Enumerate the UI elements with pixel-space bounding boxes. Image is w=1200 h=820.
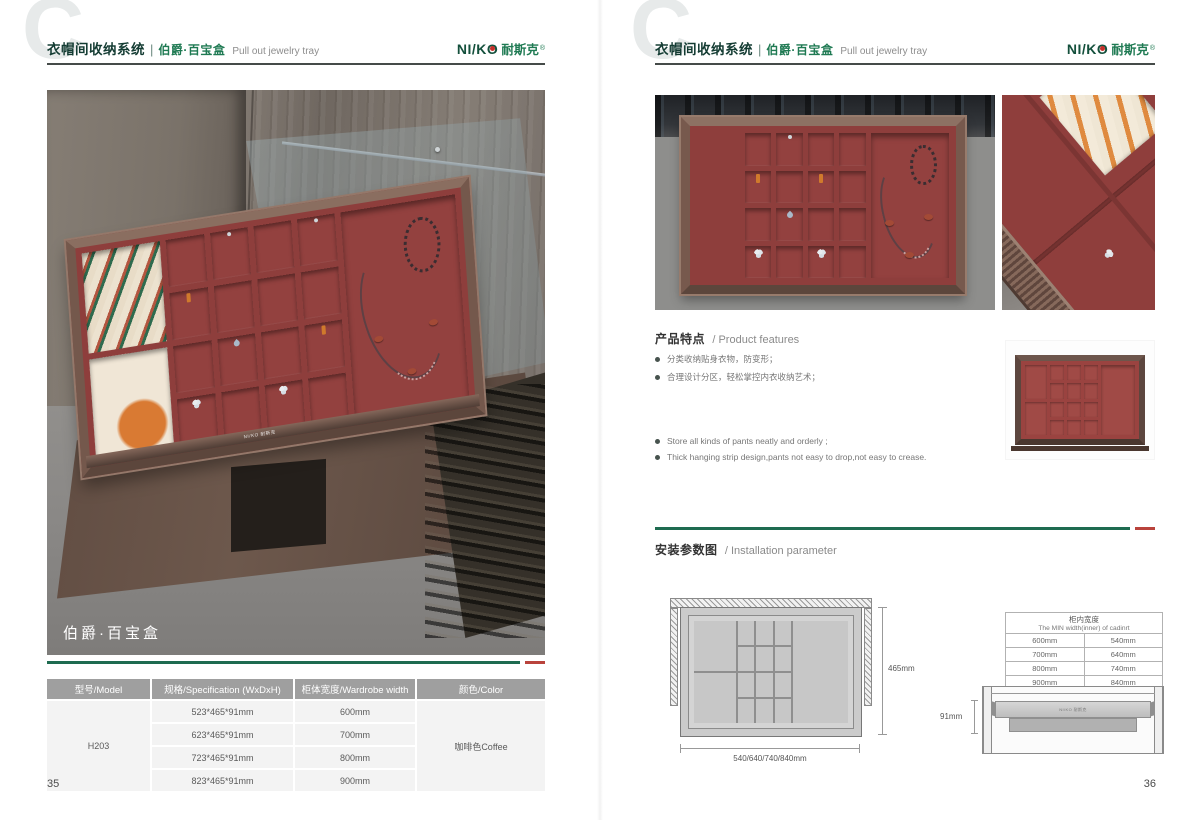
- tray-open-cell: [1101, 365, 1135, 435]
- header-divider: |: [150, 42, 153, 57]
- diagram-cell: [738, 647, 755, 671]
- spec-value: 523*465*91mm: [152, 701, 293, 722]
- diagram-cell: [738, 673, 755, 697]
- rotated-tray-corner: [1002, 95, 1155, 310]
- tray-grid-cells: [745, 133, 866, 278]
- tray-cell: [166, 234, 207, 287]
- hatched-cabinet-side-left: [670, 608, 678, 706]
- diagram-cell: [775, 621, 792, 645]
- heart-earrings-icon: [232, 339, 240, 347]
- tray-compartments: [1025, 365, 1135, 435]
- heart-earrings-icon: [785, 211, 793, 219]
- spec-table: 型号/Model H203 规格/Specification (WxDxH) 5…: [47, 679, 545, 791]
- header-divider: |: [758, 42, 761, 57]
- accent-rule: [655, 527, 1155, 530]
- width-value: 900mm: [295, 770, 415, 791]
- tray-cell: [213, 280, 254, 333]
- header-rule: [655, 63, 1155, 65]
- width-value: 800mm: [295, 747, 415, 768]
- feature-text: Thick hanging strip design,pants not eas…: [667, 452, 926, 462]
- tray-cell: [1067, 383, 1081, 398]
- tray-scarf-column: [1025, 365, 1047, 435]
- color-value: 咖啡色Coffee: [417, 701, 545, 791]
- feature-item: 分类收纳贴身衣物，防变形；: [655, 353, 820, 365]
- cabinet-side-panel: [983, 687, 992, 753]
- tray-cell: [260, 326, 301, 379]
- cabinet-outline: NI/KO 耐斯克: [982, 686, 1164, 754]
- tray-cell: [808, 246, 834, 279]
- spec-col-specification: 规格/Specification (WxDxH) 523*465*91mm 62…: [152, 679, 293, 791]
- flower-brooch-icon: [279, 385, 289, 395]
- tray-cell: [1084, 383, 1098, 398]
- tray-profile-upper: NI/KO 耐斯克: [995, 701, 1151, 718]
- depth-dimension-label: 465mm: [888, 664, 915, 673]
- width-dimension-label: 540/640/740/840mm: [680, 754, 860, 763]
- tray-cell: [839, 171, 866, 204]
- flower-petals: [1102, 247, 1115, 260]
- tray-cell: [745, 208, 771, 241]
- jewelry-tray: [681, 117, 965, 294]
- col-header-width: 柜体宽度/Wardrobe width: [295, 679, 415, 699]
- min-width-table-header: 柜内宽度 The MIN width(inner) of cadinrt: [1006, 613, 1163, 634]
- table-row: 700mm 640mm: [1006, 648, 1163, 662]
- flower-brooch-icon: [754, 249, 763, 258]
- table-row: 800mm 740mm: [1006, 662, 1163, 676]
- header-subtitle-en: Pull out jewelry tray: [232, 46, 319, 57]
- tray-cell: [1025, 402, 1047, 436]
- red-bead-icon: [885, 220, 894, 226]
- tray-cell: [776, 171, 802, 204]
- table-row: 600mm 540mm: [1006, 634, 1163, 648]
- tray-cell: [257, 273, 298, 326]
- flower-brooch-icon: [1102, 245, 1117, 260]
- accent-rule-red: [525, 661, 545, 664]
- diagram-cell: [756, 673, 773, 697]
- bullet-icon: [655, 439, 660, 444]
- tray-cell: [1050, 365, 1064, 380]
- tray-cell: [1084, 420, 1098, 435]
- min-width-title-en: The MIN width(inner) of cadinrt: [1012, 625, 1156, 632]
- accent-rule-green: [47, 661, 520, 664]
- cabinet-top-line: [991, 693, 1155, 694]
- tray-profile-lower: [1009, 718, 1137, 732]
- page-header: 衣帽间收纳系统 | 伯爵·百宝盒 Pull out jewelry tray N…: [47, 38, 545, 58]
- header-subtitle-cn: 伯爵·百宝盒: [158, 41, 225, 58]
- flower-brooch-icon: [817, 249, 826, 258]
- nisko-logo: NI/KO 耐斯克 ®: [1067, 39, 1155, 58]
- tray-cell: [839, 133, 866, 166]
- header-title-cn: 衣帽间收纳系统: [47, 38, 145, 58]
- diagram-cell: [738, 621, 755, 645]
- logo-cn-text: 耐斯克: [501, 39, 539, 58]
- tray-base-rail: [1011, 446, 1149, 451]
- dimension-line-vertical: [974, 700, 975, 734]
- header-subtitle-en: Pull out jewelry tray: [840, 46, 927, 57]
- dimension-tick: [878, 607, 887, 608]
- wardrobe-width-cell: 600mm: [1006, 634, 1085, 648]
- page-36: C 衣帽间收纳系统 | 伯爵·百宝盒 Pull out jewelry tray…: [600, 0, 1200, 820]
- product-thumbnail: [1005, 340, 1155, 460]
- tray-cell: [1084, 402, 1098, 417]
- hatched-cabinet-side-right: [864, 608, 872, 706]
- wardrobe-width-cell: 800mm: [1006, 662, 1085, 676]
- tray-cell: [808, 171, 834, 204]
- page-35: C 衣帽间收纳系统 | 伯爵·百宝盒 Pull out jewelry tray…: [0, 0, 600, 820]
- dimension-tick: [878, 734, 887, 735]
- logo-wordmark: NI/KO: [1067, 41, 1108, 57]
- tray-cell: [745, 133, 771, 166]
- tray-compartments: [697, 133, 949, 278]
- diagram-cell: [694, 673, 736, 723]
- tray-scarf-column: [82, 241, 175, 460]
- tray-scarf-column: [697, 133, 740, 278]
- wardrobe-width-cell: 700mm: [1006, 648, 1085, 662]
- tray-cell: [1067, 365, 1081, 380]
- height-dimension-label: 91mm: [940, 712, 962, 721]
- diagram-left-cells: [694, 621, 736, 723]
- diagram-cell: [775, 647, 792, 671]
- tassel-icon: [321, 325, 326, 335]
- tray-cell: [745, 246, 771, 279]
- col-header-model: 型号/Model: [47, 679, 150, 699]
- tray-grid-cells: [1050, 365, 1098, 435]
- diagram-cell: [775, 699, 792, 723]
- tray-cell: [776, 246, 802, 279]
- tray-cell: [1084, 365, 1098, 380]
- diagram-compartments: [694, 621, 848, 723]
- tray-cell: [173, 340, 214, 393]
- header-subtitle-cn: 伯爵·百宝盒: [766, 41, 833, 58]
- diagram-cell: [775, 673, 792, 697]
- page-number: 35: [47, 778, 59, 790]
- feature-text: 合理设计分区，轻松掌控内衣收纳艺术；: [667, 371, 820, 383]
- diagram-cell: [756, 699, 773, 723]
- earring-icon: [788, 135, 792, 139]
- col-header-spec: 规格/Specification (WxDxH): [152, 679, 293, 699]
- catalog-spread: C 衣帽间收纳系统 | 伯爵·百宝盒 Pull out jewelry tray…: [0, 0, 1200, 820]
- tray-open-cell: [871, 133, 949, 278]
- tray-grid-cells: [166, 213, 349, 447]
- flower-brooch-icon: [192, 399, 202, 409]
- accent-rule-green: [655, 527, 1130, 530]
- tray-compartments: [82, 194, 470, 460]
- tray-cell: [253, 220, 294, 273]
- dimension-tick: [859, 744, 860, 753]
- spec-value: 623*465*91mm: [152, 724, 293, 745]
- spec-value: 723*465*91mm: [152, 747, 293, 768]
- photo-caption: 伯爵·百宝盒: [63, 622, 161, 643]
- bullet-icon: [655, 455, 660, 460]
- features-title-cn: 产品特点: [655, 332, 705, 346]
- installation-title: 安装参数图 / Installation parameter: [655, 541, 837, 558]
- dimension-line-horizontal: [680, 748, 860, 749]
- tray-cell: [300, 266, 341, 319]
- cabinet-side-panel: [1154, 687, 1163, 753]
- dimension-tick: [971, 733, 978, 734]
- feature-text: Store all kinds of pants neatly and orde…: [667, 436, 828, 446]
- diagram-open-cell: [793, 621, 848, 723]
- tray-cell: [1025, 365, 1047, 399]
- tray-cell: [1050, 402, 1064, 417]
- registered-mark: ®: [540, 45, 545, 52]
- tray-cell: [745, 171, 771, 204]
- model-value: H203: [47, 701, 150, 791]
- watermark-letter: C: [630, 0, 692, 72]
- tray-cell: [217, 333, 258, 386]
- diagram-grid-cells: [738, 621, 792, 723]
- nisko-logo: NI/KO 耐斯克 ®: [457, 39, 545, 58]
- logo-red-dot-icon: [1100, 46, 1105, 51]
- installation-title-cn: 安装参数图: [655, 543, 718, 557]
- table-header-row: 柜内宽度 The MIN width(inner) of cadinrt: [1006, 613, 1163, 634]
- diagram-cell: [756, 621, 773, 645]
- tray-logo-text: NI/KO 耐斯克: [1059, 707, 1087, 713]
- features-title-en: / Product features: [712, 334, 799, 346]
- page-number: 36: [1144, 778, 1156, 790]
- logo-wordmark: NI/KO: [457, 41, 498, 57]
- scarf-striped: [82, 241, 167, 354]
- width-value: 700mm: [295, 724, 415, 745]
- spec-value: 823*465*91mm: [152, 770, 293, 791]
- tray-logo-text: NI/KO 耐斯克: [243, 429, 275, 440]
- tray-cell: [839, 246, 866, 279]
- tray-cell: [1067, 402, 1081, 417]
- features-list-cn: 分类收纳贴身衣物，防变形； 合理设计分区，轻松掌控内衣收纳艺术；: [655, 353, 820, 383]
- accent-rule: [47, 661, 545, 664]
- header-rule: [47, 63, 545, 65]
- diagram-tray-outline: [680, 607, 862, 737]
- dimension-tick: [680, 744, 681, 753]
- diagram-cell: [738, 699, 755, 723]
- registered-mark: ®: [1150, 45, 1155, 52]
- tray-cell: [304, 320, 345, 373]
- tray-cell: [776, 133, 802, 166]
- tray-corner-detail-photo: [1002, 95, 1155, 310]
- diagram-cell: [694, 621, 736, 671]
- logo-cn-text: 耐斯克: [1111, 39, 1149, 58]
- feature-item: 合理设计分区，轻松掌控内衣收纳艺术；: [655, 371, 820, 383]
- amber-pendant-icon: [756, 174, 760, 183]
- min-width-table: 柜内宽度 The MIN width(inner) of cadinrt 600…: [1005, 612, 1163, 690]
- amber-pendant-icon: [187, 293, 192, 303]
- spec-col-wardrobe-width: 柜体宽度/Wardrobe width 600mm 700mm 800mm 90…: [295, 679, 415, 791]
- width-value: 600mm: [295, 701, 415, 722]
- feature-item: Store all kinds of pants neatly and orde…: [655, 436, 926, 446]
- min-width-title-cn: 柜内宽度: [1008, 614, 1160, 625]
- tray-illustration: [1015, 355, 1145, 445]
- earring-icon: [226, 232, 230, 237]
- diagram-cell: [756, 647, 773, 671]
- header-title-cn: 衣帽间收纳系统: [655, 38, 753, 58]
- hero-photo-wardrobe-tray: NI/KO 耐斯克 伯爵·百宝盒: [47, 90, 545, 655]
- feature-text: 分类收纳贴身衣物，防变形；: [667, 353, 778, 365]
- bullet-icon: [655, 375, 660, 380]
- tray-top-view-photo: [655, 95, 995, 310]
- tray-cell: [808, 208, 834, 241]
- open-shelf-gap: [231, 459, 326, 552]
- top-view-diagram: 465mm 540/640/740/840mm: [670, 598, 905, 763]
- tassel-icon: [819, 174, 823, 183]
- tray-cell: [1067, 420, 1081, 435]
- feature-item: Thick hanging strip design,pants not eas…: [655, 452, 926, 462]
- inner-width-cell: 740mm: [1084, 662, 1163, 676]
- dimension-line-vertical: [882, 607, 883, 735]
- tray-cell: [839, 208, 866, 241]
- accent-rule-red: [1135, 527, 1155, 530]
- installation-title-en: / Installation parameter: [725, 545, 837, 557]
- side-view-diagram: 91mm NI/KO 耐斯克: [940, 686, 1165, 756]
- watermark-letter: C: [22, 0, 84, 72]
- tray-open-cell: [340, 194, 470, 419]
- spec-col-model: 型号/Model H203: [47, 679, 150, 791]
- features-list-en: Store all kinds of pants neatly and orde…: [655, 436, 926, 462]
- logo-red-dot-icon: [490, 46, 495, 51]
- tray-cell: [1050, 420, 1064, 435]
- tray-cell: [1050, 383, 1064, 398]
- bullet-icon: [655, 357, 660, 362]
- earring-icon: [313, 218, 317, 223]
- inner-width-cell: 640mm: [1084, 648, 1163, 662]
- col-header-color: 颜色/Color: [417, 679, 545, 699]
- page-header: 衣帽间收纳系统 | 伯爵·百宝盒 Pull out jewelry tray N…: [655, 38, 1155, 58]
- inner-width-cell: 540mm: [1084, 634, 1163, 648]
- tray-cell: [170, 287, 211, 340]
- tray-cell: [808, 133, 834, 166]
- tray-cell: [297, 213, 338, 266]
- tray-cell: [209, 227, 250, 280]
- spec-col-color: 颜色/Color 咖啡色Coffee: [417, 679, 545, 791]
- tray-cell: [776, 208, 802, 241]
- red-bead-icon: [905, 252, 914, 258]
- dimension-tick: [971, 700, 978, 701]
- features-title: 产品特点 / Product features: [655, 330, 799, 347]
